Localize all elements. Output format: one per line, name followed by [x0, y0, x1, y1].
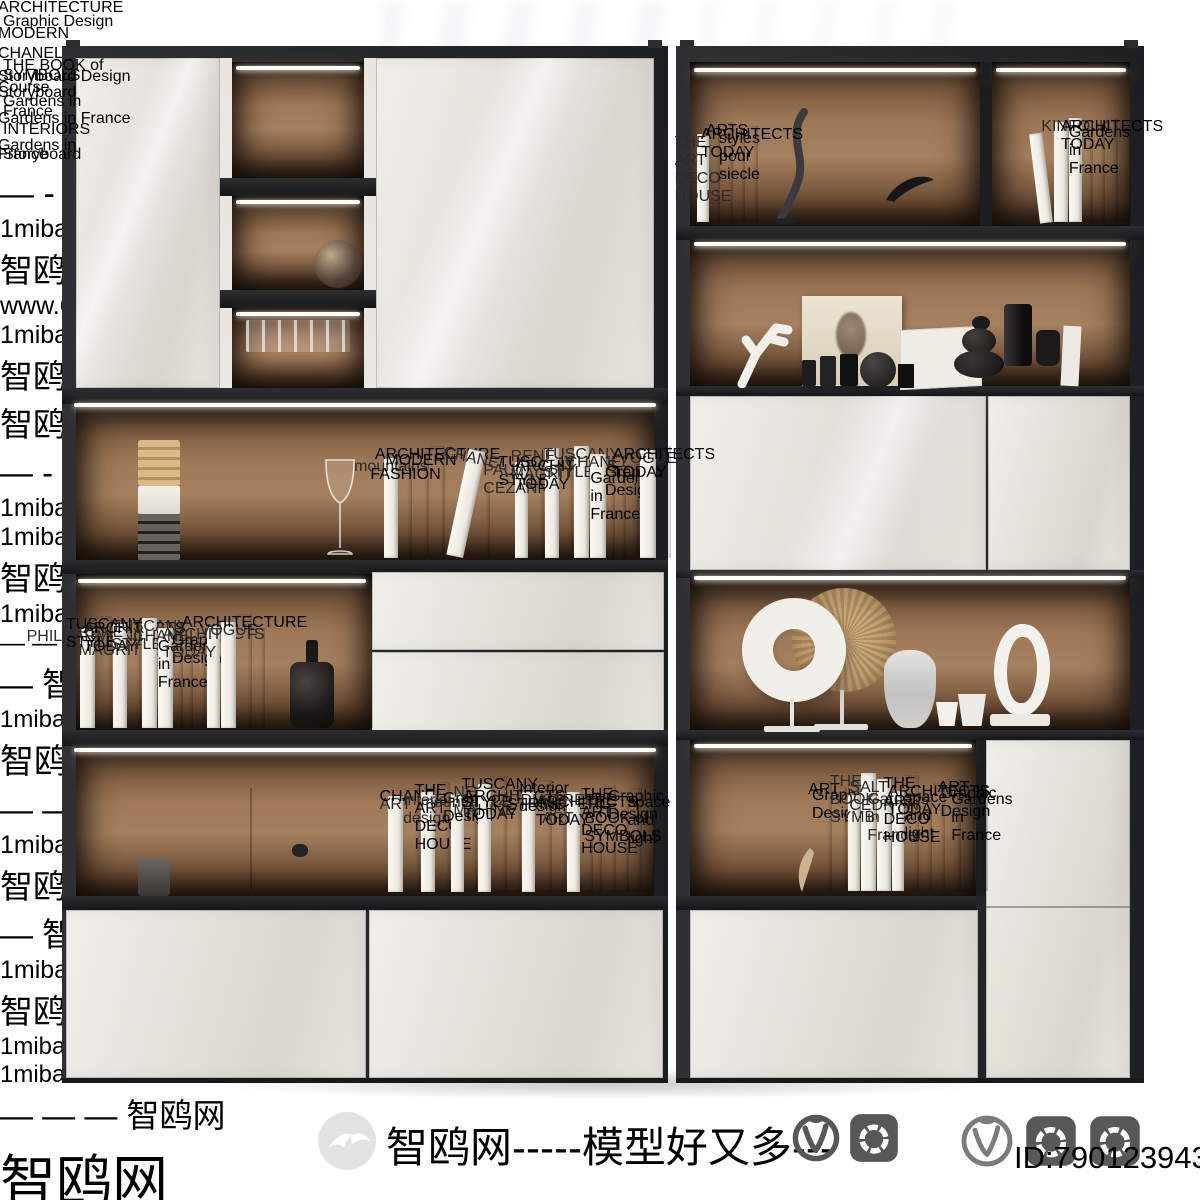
donut-disc-sculpture [742, 598, 846, 702]
frame-cap [1124, 40, 1138, 48]
wood-disc-base [814, 724, 868, 730]
folder-seam [250, 788, 252, 890]
left-middle-shelf-books: mountainsFASHIONMODERNARCHITECTURECHANEL… [384, 433, 672, 558]
shelf-board [220, 178, 376, 196]
glass-decanter [316, 118, 340, 146]
loop-sculpture-base [990, 714, 1050, 726]
vray-outline-icon [958, 1112, 1016, 1170]
shelf-board [62, 730, 668, 746]
led-strip [74, 403, 656, 407]
product-render: 智鸥网-----模型好又多--- ID:790123943 mountainsF… [0, 0, 1200, 1200]
shelf-board [220, 290, 376, 308]
black-square-bottle [840, 354, 858, 386]
book-spine: ARCHITECTS TODAY [657, 446, 671, 558]
openwork-sphere [314, 240, 362, 288]
small-cup [958, 694, 986, 726]
door-seam [986, 906, 1130, 908]
stacked-book: MODERN [0, 27, 150, 40]
donut-disc-stand [790, 700, 794, 728]
book-spine: space and light [643, 794, 655, 892]
corona-icon [848, 1112, 900, 1164]
cabinet-foot [70, 1082, 82, 1091]
led-strip [694, 744, 972, 748]
right-base-drawer [690, 910, 978, 1078]
right-top-right-books: KINFOLKGardens in FranceARCHITECTS TODAY [1040, 97, 1132, 222]
coaster-tower-middle [138, 486, 180, 514]
marble-vase [884, 650, 936, 728]
panda-illustration [292, 844, 308, 857]
metal-canister [246, 240, 272, 288]
center-drawer-bottom [372, 652, 664, 734]
glass-tumbler-row [246, 320, 350, 352]
door-reflection [76, 58, 220, 388]
divider-post [980, 62, 992, 226]
door-reflection [376, 58, 654, 388]
stacked-book: Storyboard Design Course [0, 71, 164, 82]
door-reflection [690, 396, 1130, 570]
small-cup [936, 702, 958, 726]
glass-decanter [244, 118, 268, 146]
left-base-door-a [66, 910, 366, 1078]
antler-sculpture [730, 314, 796, 388]
coaster-tower-bottom [138, 514, 180, 560]
led-strip [236, 200, 360, 204]
footer-brand-text: 智鸥网-----模型好又多--- [386, 1114, 834, 1175]
pebble-sculpture [954, 350, 1004, 378]
perfume-bottle [820, 356, 836, 386]
model-id-text: ID:790123943 [1014, 1140, 1200, 1176]
left-base-door-b [369, 910, 663, 1078]
led-strip [236, 66, 360, 70]
stacked-book: Storyboard [3, 150, 145, 160]
book-spine [1119, 126, 1131, 222]
vray-icon [790, 1112, 842, 1164]
shelf-board [676, 730, 1144, 740]
book-spine [253, 628, 265, 728]
glass-round-vase [704, 826, 764, 894]
shelf-board [62, 896, 668, 910]
left-lower-shelf-books: PHILHARMONIETUSCANY STYLERENE MAGRITTEAR… [80, 603, 266, 728]
cabinet-foot [1126, 1082, 1138, 1091]
dark-vase [1004, 304, 1032, 366]
base-bottom-rail [62, 1078, 668, 1083]
lamp-base [138, 858, 170, 896]
led-strip [78, 579, 366, 583]
center-drawer-top [372, 572, 664, 650]
decanter-book-stack: ARCHITECTUREGraphic DesignMODERN [0, 0, 180, 46]
book-title: ARCHITECTURE [182, 614, 307, 728]
cabinet-foot [646, 1082, 658, 1091]
shelf-board [676, 226, 1144, 240]
frame-cap [680, 40, 694, 48]
cabinet-foot [682, 1082, 694, 1091]
book-title: ARCHITECTS TODAY [701, 126, 803, 222]
right-top-left-books: THE ART DECO HOUSEARTSstyles pour siecle… [697, 97, 759, 222]
led-strip [74, 748, 656, 752]
donut-disc-base [764, 726, 820, 732]
book-title: space and light [628, 794, 671, 892]
book-title: ARCHITECTS TODAY [613, 446, 715, 558]
led-strip [996, 68, 1126, 72]
black-canister [862, 166, 880, 204]
book-spine: ARCHITECTURE [237, 614, 252, 728]
led-strip [694, 576, 1126, 580]
book-title: Gardens in France [951, 791, 1012, 891]
footer-bar: 智鸥网-----模型好又多--- ID:790123943 [0, 1096, 1200, 1200]
left-bottom-shelf-books: ARTCHANELInterior designTHE ART DECO HOU… [388, 767, 656, 892]
coaster-tower-top [138, 440, 180, 486]
seagull-icon [318, 1112, 376, 1170]
shelf-board [62, 388, 668, 404]
right-bottom-shelf-books: ARTGraphic DesignTHE BOOK of SYMBOLSSALT… [816, 766, 989, 891]
base-bottom-rail [676, 1078, 1144, 1083]
book-title: ARCHITECTS TODAY [1061, 118, 1163, 222]
led-strip [694, 68, 976, 72]
book-spine: ARCHITECTS TODAY [746, 126, 758, 222]
display-column-side [220, 58, 232, 388]
book-spine: ARCHITECTS TODAY [1106, 118, 1118, 222]
metal-canister [280, 238, 308, 288]
seagull-logo [318, 1112, 376, 1170]
led-strip [236, 312, 360, 316]
led-strip [694, 242, 1126, 246]
horn-sculpture [882, 170, 938, 206]
frame-cap [648, 40, 662, 48]
dark-vase [1036, 330, 1060, 366]
stacked-book: Gardens in France [3, 97, 133, 107]
black-cube [898, 364, 914, 388]
stacked-book: INTERIORS [3, 124, 163, 135]
portrait-face [836, 312, 866, 358]
glass-decanter [280, 114, 306, 144]
perfume-bottle [802, 360, 816, 386]
round-flask [860, 352, 896, 388]
leaning-white-board [1060, 326, 1081, 387]
book-spine: Gardens in France [976, 791, 988, 891]
wood-disc-stand [840, 690, 844, 726]
display-column-side [364, 58, 376, 388]
book-spine: CHANEL [446, 449, 485, 558]
shelf-board [676, 896, 976, 910]
black-canister [843, 172, 859, 204]
